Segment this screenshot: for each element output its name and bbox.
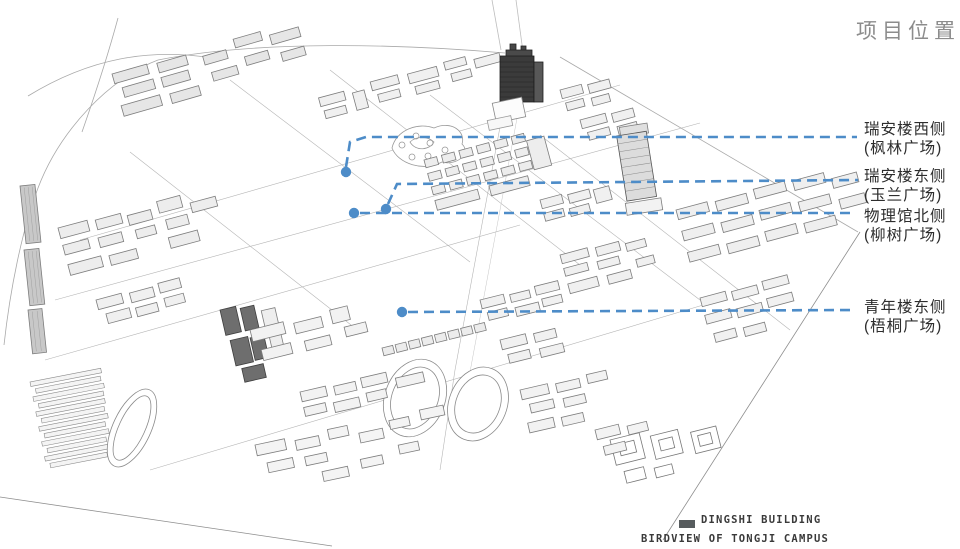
annotation-subtitle: (枫林广场) (864, 139, 947, 158)
legend-dingshi-label: DINGSHI BUILDING (701, 514, 821, 526)
annotation-title: 瑞安楼西侧 (864, 120, 947, 139)
project-location-page: { "title": {"text": "项目位置"}, "annotation… (0, 0, 960, 549)
annotation-label-ruian-west: 瑞安楼西侧(枫林广场) (864, 120, 947, 158)
annotation-title: 瑞安楼东侧 (864, 167, 947, 186)
annotation-label-youth-east: 青年楼东侧(梧桐广场) (864, 298, 947, 336)
annotation-title: 物理馆北侧 (864, 207, 947, 226)
annotation-label-ruian-east: 瑞安楼东侧(玉兰广场) (864, 167, 947, 205)
annotation-subtitle: (梧桐广场) (864, 317, 947, 336)
annotation-subtitle: (柳树广场) (864, 226, 947, 245)
annotation-labels: 瑞安楼西侧(枫林广场)瑞安楼东侧(玉兰广场)物理馆北侧(柳树广场)青年楼东侧(梧… (0, 0, 960, 549)
annotation-title: 青年楼东侧 (864, 298, 947, 317)
drawing-caption: BIRDVIEW OF TONGJI CAMPUS (641, 533, 829, 545)
annotation-label-physics-north: 物理馆北侧(柳树广场) (864, 207, 947, 245)
annotation-subtitle: (玉兰广场) (864, 186, 947, 205)
